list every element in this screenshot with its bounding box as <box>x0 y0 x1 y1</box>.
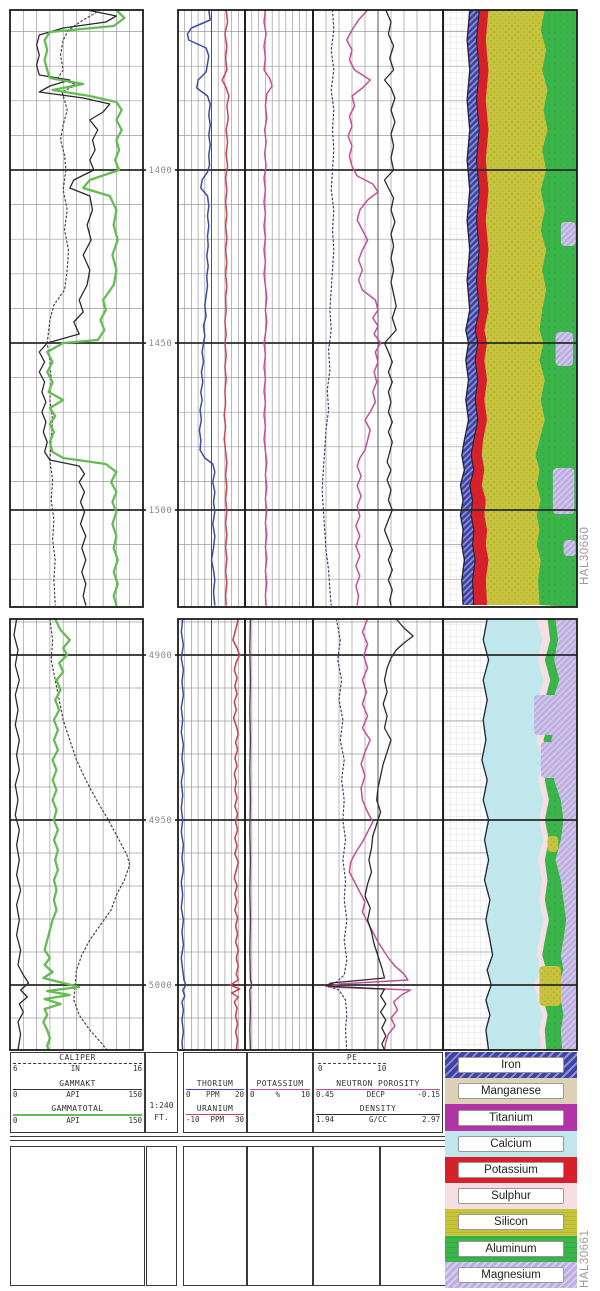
header-row-pe: PE010 <box>316 1053 388 1073</box>
curve-scale-unit: PPM <box>206 1090 220 1099</box>
legend-band-potassium: Potassium <box>445 1157 577 1183</box>
legend-label: Calcium <box>458 1136 564 1152</box>
curve-scale-max: 10 <box>377 1064 386 1073</box>
mineral-legend: IronManganeseTitaniumCalciumPotassiumSul… <box>445 1052 577 1288</box>
header-box-b5 <box>313 1146 380 1286</box>
curve-scale-max: 20 <box>235 1090 244 1099</box>
depth-label: 1500 <box>149 506 173 516</box>
depth-scale-unit: FT. <box>145 1112 178 1124</box>
curve-scale-min: 0.45 <box>316 1090 334 1099</box>
curve-scale-values: 0API150 <box>11 1116 144 1125</box>
curve-scale-min: 0 <box>186 1090 191 1099</box>
legend-band-calcium: Calcium <box>445 1131 577 1157</box>
curve-caliper <box>47 10 100 605</box>
legend-label: Aluminum <box>458 1241 564 1257</box>
curve-scale-max: 10 <box>301 1090 310 1099</box>
legend-band-iron: Iron <box>445 1052 577 1078</box>
depth-label: 4950 <box>149 816 173 826</box>
header-box-b4 <box>247 1146 313 1286</box>
header-row-neutron-porosity: NEUTRON POROSITY0.45DECP-0.15 <box>314 1079 442 1099</box>
curve-scale-values: 010 <box>316 1064 388 1073</box>
depth-label: 4900 <box>149 651 173 661</box>
curve-scale-unit: DECP <box>367 1090 385 1099</box>
depth-label: 1450 <box>149 339 173 349</box>
header-row-thorium: THORIUM0PPM20 <box>184 1079 246 1099</box>
legend-band-manganese: Manganese <box>445 1078 577 1104</box>
curve-scale-min: 0 <box>13 1090 18 1099</box>
legend-label: Iron <box>458 1057 564 1073</box>
curve-scale-unit: API <box>66 1090 80 1099</box>
header-box-b3 <box>183 1146 247 1286</box>
curve-label: POTASSIUM <box>248 1079 312 1088</box>
legend-band-magnesium: Magnesium <box>445 1262 577 1288</box>
curve-scale-max: 150 <box>128 1116 142 1125</box>
legend-label: Titanium <box>458 1110 564 1126</box>
curve-scale-unit: IN <box>71 1064 80 1073</box>
header-row-caliper: CALIPER6IN16 <box>11 1053 144 1073</box>
curve-scale-values: 0%10 <box>248 1090 312 1099</box>
legend-label: Magnesium <box>458 1267 564 1283</box>
curve-scale-min: 1.94 <box>316 1115 334 1124</box>
legend-band-aluminum: Aluminum <box>445 1236 577 1262</box>
curve-label: GAMMATOTAL <box>11 1104 144 1113</box>
legend-band-titanium: Titanium <box>445 1104 577 1130</box>
curve-scale-min: 0 <box>318 1064 323 1073</box>
curve-label: DENSITY <box>314 1104 442 1113</box>
curve-pe <box>322 10 334 605</box>
curve-scale-values: 0PPM20 <box>184 1090 246 1099</box>
header-row-density: DENSITY1.94G/CC2.97 <box>314 1104 442 1124</box>
header-row-gammakt: GAMMAKT0API150 <box>11 1079 144 1099</box>
depth-label: 1400 <box>149 166 173 176</box>
header-box-t3: POTASSIUM0%10 <box>247 1052 313 1133</box>
well-log-figure: 140014501500490049505000 CALIPER6IN16GAM… <box>0 0 600 1291</box>
curve-uranium <box>222 10 229 605</box>
curve-scale-unit: G/CC <box>369 1115 387 1124</box>
curve-label: GAMMAKT <box>11 1079 144 1088</box>
figure-id-bottom: HAL30661 <box>579 1158 591 1288</box>
curve-scale-max: -0.15 <box>417 1090 440 1099</box>
legend-label: Sulphur <box>458 1188 564 1204</box>
curve-scale-max: 2.97 <box>422 1115 440 1124</box>
header-box-t4: PE010NEUTRON POROSITY0.45DECP-0.15DENSIT… <box>313 1052 443 1133</box>
header-row-potassium: POTASSIUM0%10 <box>248 1079 312 1099</box>
curve-scale-min: 0 <box>250 1090 255 1099</box>
curve-label: CALIPER <box>11 1053 144 1062</box>
curve-scale-unit: PPM <box>210 1115 224 1124</box>
curve-scale-values: 0.45DECP-0.15 <box>314 1090 442 1099</box>
header-row-uranium: URANIUM-10PPM30 <box>184 1104 246 1124</box>
legend-label: Manganese <box>458 1083 564 1099</box>
header-row-gammatotal: GAMMATOTAL0API150 <box>11 1104 144 1125</box>
legend-band-silicon: Silicon <box>445 1209 577 1235</box>
curve-scale-unit: API <box>66 1116 80 1125</box>
legend-label: Silicon <box>458 1214 564 1230</box>
depth-label: 5000 <box>149 981 173 991</box>
depth-scale-ratio: 1:240 <box>145 1100 178 1112</box>
curve-scale-values: 6IN16 <box>11 1064 144 1073</box>
curve-density <box>385 10 397 605</box>
curve-scale-min: 0 <box>13 1116 18 1125</box>
curve-scale-values: 1.94G/CC2.97 <box>314 1115 442 1124</box>
curve-scale-unit: % <box>275 1090 280 1099</box>
curve-label: THORIUM <box>184 1079 246 1088</box>
legend-label: Potassium <box>458 1162 564 1178</box>
curve-label: NEUTRON POROSITY <box>314 1079 442 1088</box>
curve-gammatotal <box>45 10 125 605</box>
curve-label: URANIUM <box>184 1104 246 1113</box>
depth-scale: 1:240 FT. <box>145 1100 178 1124</box>
curve-scale-min: 6 <box>13 1064 18 1073</box>
curve-scale-max: 16 <box>133 1064 142 1073</box>
curve-scale-max: 30 <box>235 1115 244 1124</box>
legend-band-sulphur: Sulphur <box>445 1183 577 1209</box>
curve-scale-values: 0API150 <box>11 1090 144 1099</box>
header-box-t2: THORIUM0PPM20URANIUM-10PPM30 <box>183 1052 247 1133</box>
header-box-b2 <box>146 1146 177 1286</box>
curve-scale-min: -10 <box>186 1115 200 1124</box>
curve-label: PE <box>316 1053 388 1062</box>
curve-scale-values: -10PPM30 <box>184 1115 246 1124</box>
figure-id-top: HAL30660 <box>579 455 591 585</box>
header-box-b1 <box>10 1146 145 1286</box>
header-box-t1: CALIPER6IN16GAMMAKT0API150GAMMATOTAL0API… <box>10 1052 145 1133</box>
curve-scale-max: 150 <box>128 1090 142 1099</box>
header-box-b6 <box>380 1146 446 1286</box>
header-bottom-rule <box>10 1136 446 1141</box>
